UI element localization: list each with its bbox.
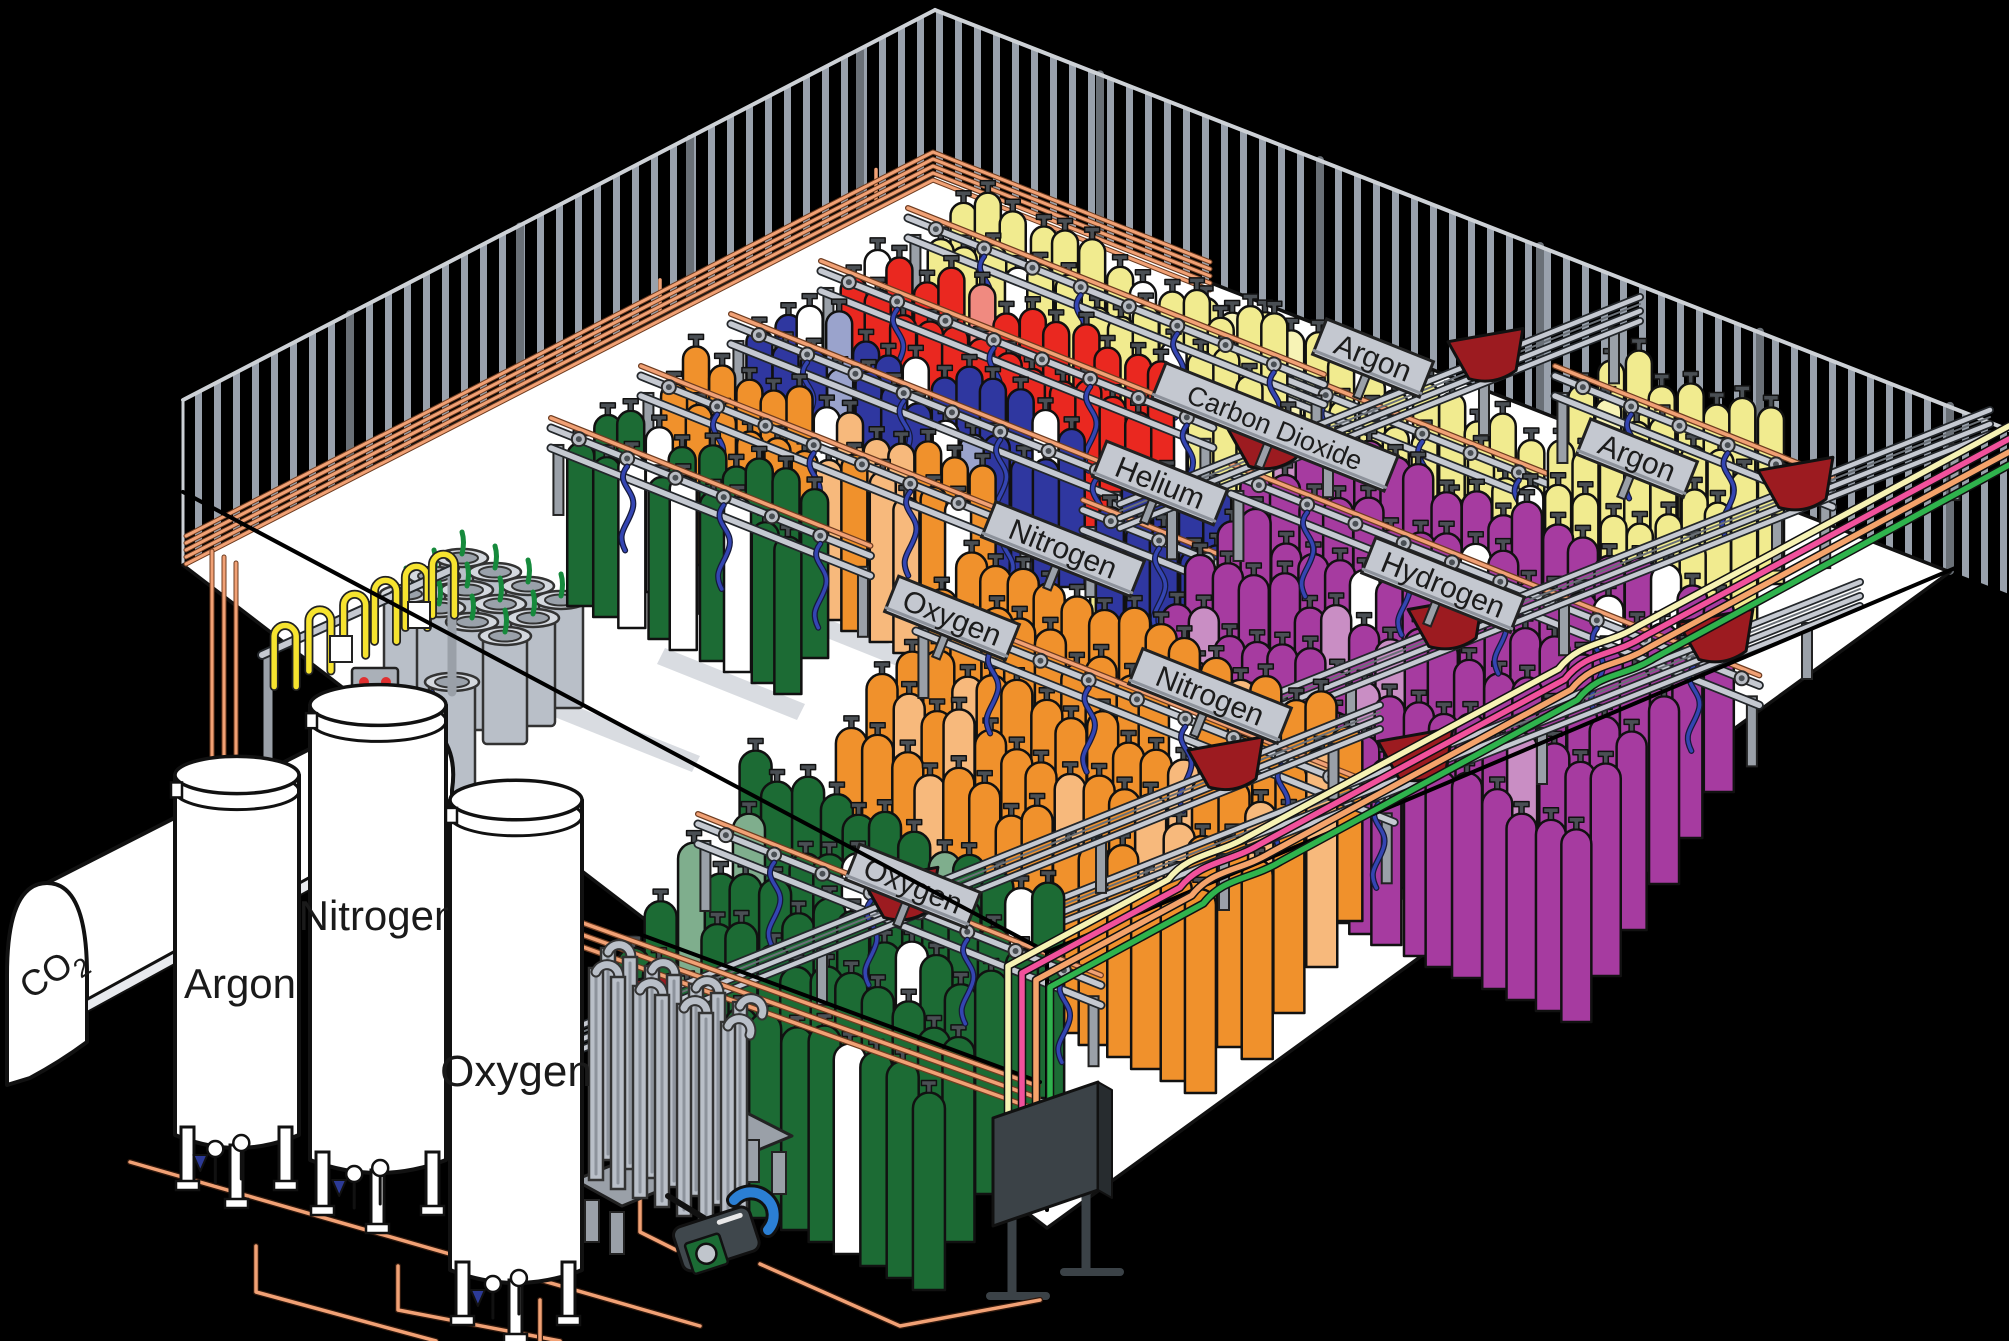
regulator-knob <box>1497 579 1503 585</box>
regulator-knob <box>949 409 955 415</box>
regulator-knob <box>1013 948 1019 954</box>
regulator-knob <box>1078 284 1084 290</box>
regulator-knob <box>721 494 727 500</box>
gas-cylinder <box>1452 773 1482 978</box>
regulator-knob <box>901 390 907 396</box>
regulator-knob <box>956 500 962 506</box>
regulator-knob <box>846 279 852 285</box>
tank-foot <box>451 1316 474 1325</box>
regulator-knob <box>997 429 1003 435</box>
valve-handle <box>233 1135 249 1151</box>
regulator-knob <box>1184 414 1190 420</box>
regulator-knob <box>1594 617 1600 623</box>
regulator-knob <box>1223 342 1229 348</box>
regulator-knob <box>964 929 970 935</box>
nitrogen-label: Nitrogen <box>299 892 458 939</box>
tank-body <box>450 800 582 1283</box>
regulator-knob <box>624 455 630 461</box>
regulator-knob <box>981 245 987 251</box>
regulator-knob <box>1304 501 1310 507</box>
tank-foot <box>311 1206 334 1215</box>
tank-foot <box>366 1224 389 1233</box>
rim-tab <box>306 713 317 728</box>
gas-cylinder <box>1242 860 1273 1059</box>
tank-leg <box>279 1127 292 1183</box>
rim-tab <box>171 782 182 797</box>
tank-foot <box>557 1316 580 1325</box>
regulator-knob <box>1468 450 1474 456</box>
vent-plume <box>500 578 502 600</box>
tank-rim <box>175 756 299 793</box>
regulator-knob <box>666 384 672 390</box>
gas-cylinder <box>1649 696 1679 884</box>
tank-body <box>310 705 446 1173</box>
argon-tank: Argon <box>171 756 299 1208</box>
regulator-knob <box>859 461 865 467</box>
regulator-knob <box>1401 540 1407 546</box>
regulator-knob <box>1182 716 1188 722</box>
gas-cylinder <box>1185 889 1216 1093</box>
regulator-knob <box>1126 303 1132 309</box>
gas-cylinder <box>913 1093 945 1290</box>
regulator-knob <box>1271 361 1277 367</box>
regulator-knob <box>1419 431 1425 437</box>
regulator-knob <box>1739 675 1745 681</box>
tank-foot <box>225 1199 248 1208</box>
regulator-knob <box>1108 518 1114 524</box>
oxygen-tank: Oxygen <box>440 780 592 1341</box>
regulator-knob <box>769 513 775 519</box>
tank-leg <box>371 1170 384 1226</box>
regulator-knob <box>819 871 825 877</box>
valve-handle <box>346 1166 362 1182</box>
plant-illustration: OxygenOxygenNitrogenNitrogenHeliumCarbon… <box>0 0 2009 1341</box>
regulator-knob <box>714 403 720 409</box>
tank-leg <box>426 1152 439 1208</box>
regulator-knob <box>1039 356 1045 362</box>
regulator-knob <box>762 423 768 429</box>
regulator-knob <box>1086 677 1092 683</box>
gas-cylinder <box>774 537 801 694</box>
valve-handle <box>207 1141 223 1157</box>
regulator-knob <box>1516 469 1522 475</box>
vent-plume <box>533 592 535 614</box>
tank-foot <box>504 1334 527 1341</box>
regulator-knob <box>1256 482 1262 488</box>
vent-plume <box>472 596 474 618</box>
dewar <box>479 610 531 744</box>
regulator-knob <box>1449 559 1455 565</box>
regulator-knob <box>1676 423 1682 429</box>
nitrogen-tank: Nitrogen <box>299 685 458 1233</box>
valve-handle <box>372 1160 388 1176</box>
regulator-knob <box>672 475 678 481</box>
valve-handle <box>511 1270 527 1286</box>
gas-cylinder <box>1561 829 1591 1022</box>
regulator-knob <box>894 298 900 304</box>
regulator-knob <box>1580 384 1586 390</box>
regulator-knob <box>1087 376 1093 382</box>
regulator-knob <box>1134 696 1140 702</box>
regulator-knob <box>942 318 948 324</box>
regulator-knob <box>1231 735 1237 741</box>
gas-cylinder <box>1591 763 1621 976</box>
regulator-knob <box>933 226 939 232</box>
rim-tab <box>446 808 457 823</box>
vaporizer-leg <box>585 1200 599 1242</box>
regulator-knob <box>1156 537 1162 543</box>
tank-leg <box>316 1152 329 1208</box>
vent-plume <box>467 564 469 586</box>
tank-leg <box>181 1127 194 1183</box>
tank-foot <box>421 1206 444 1215</box>
junction-box <box>330 636 352 662</box>
tank-foot <box>176 1181 199 1190</box>
vaporizer-leg <box>772 1152 786 1194</box>
vent-plume <box>505 610 507 632</box>
regulator-knob <box>576 436 582 442</box>
regulator-knob <box>1037 658 1043 664</box>
vent-plume <box>439 582 441 604</box>
dewar-body <box>483 634 527 744</box>
regulator-knob <box>723 832 729 838</box>
valve-handle <box>485 1276 501 1292</box>
regulator-knob <box>1029 265 1035 271</box>
vent-plume <box>528 560 530 582</box>
tank-rim <box>310 685 446 726</box>
tank-leg <box>562 1262 575 1318</box>
tank-leg <box>456 1262 469 1318</box>
vaporizer-leg <box>610 1212 624 1254</box>
regulator-knob <box>1628 403 1634 409</box>
oxygen-label: Oxygen <box>440 1047 592 1096</box>
gas-cylinder <box>1507 814 1537 1000</box>
regulator-knob <box>1352 521 1358 527</box>
vent-plume <box>495 546 497 568</box>
gas-plant-scene: OxygenOxygenNitrogenNitrogenHeliumCarbon… <box>0 0 2009 1341</box>
regulator-knob <box>1323 392 1329 398</box>
regulator-knob <box>1174 323 1180 329</box>
tank-rim <box>450 780 582 820</box>
tank-foot <box>274 1181 297 1190</box>
regulator-knob <box>1046 448 1052 454</box>
regulator-knob <box>1136 395 1142 401</box>
regulator-knob <box>771 851 777 857</box>
regulator-knob <box>817 533 823 539</box>
regulator-knob <box>804 351 810 357</box>
panel-side <box>1098 1082 1112 1198</box>
argon-label: Argon <box>184 960 296 1007</box>
regulator-knob <box>811 442 817 448</box>
vent-plume <box>561 574 563 596</box>
gas-cylinder <box>593 457 620 617</box>
regulator-knob <box>991 337 997 343</box>
vent-plume <box>462 532 464 554</box>
regulator-knob <box>907 481 913 487</box>
regulator-knob <box>852 371 858 377</box>
regulator-knob <box>756 332 762 338</box>
regulator-knob <box>1725 442 1731 448</box>
